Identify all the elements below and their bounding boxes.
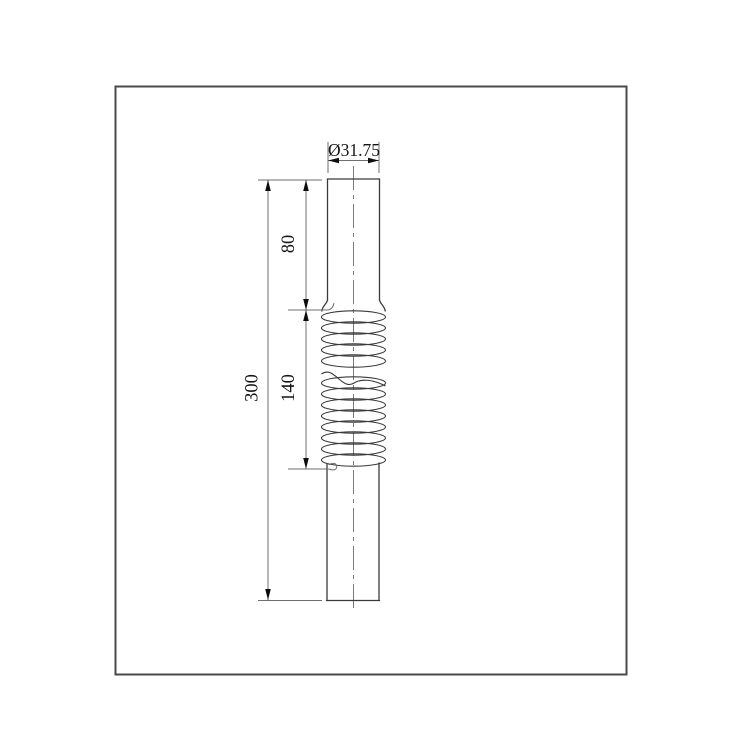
arrowhead-up <box>265 180 271 191</box>
dimension-upper-segment: 80 <box>279 180 309 310</box>
neck-transition-left <box>322 300 328 311</box>
dimension-diameter: Ø31.75 <box>328 140 380 173</box>
extension-line-mid-hook <box>328 303 334 310</box>
arrowhead-up <box>303 180 309 191</box>
arrowhead-down <box>265 589 271 600</box>
cad-drawing-page: Ø31.75 300 80 140 <box>0 0 750 750</box>
dimension-label-corrugated-segment: 140 <box>279 374 299 402</box>
neck-transition-right <box>380 300 386 311</box>
dimension-label-overall-length: 300 <box>243 374 263 402</box>
arrowhead-down <box>303 458 309 469</box>
arrowhead-up <box>303 310 309 321</box>
drawing-svg: Ø31.75 300 80 140 <box>0 0 750 750</box>
arrowhead-down <box>303 299 309 310</box>
dimension-label-upper-segment: 80 <box>279 235 299 254</box>
dimension-label-diameter: Ø31.75 <box>328 140 380 160</box>
